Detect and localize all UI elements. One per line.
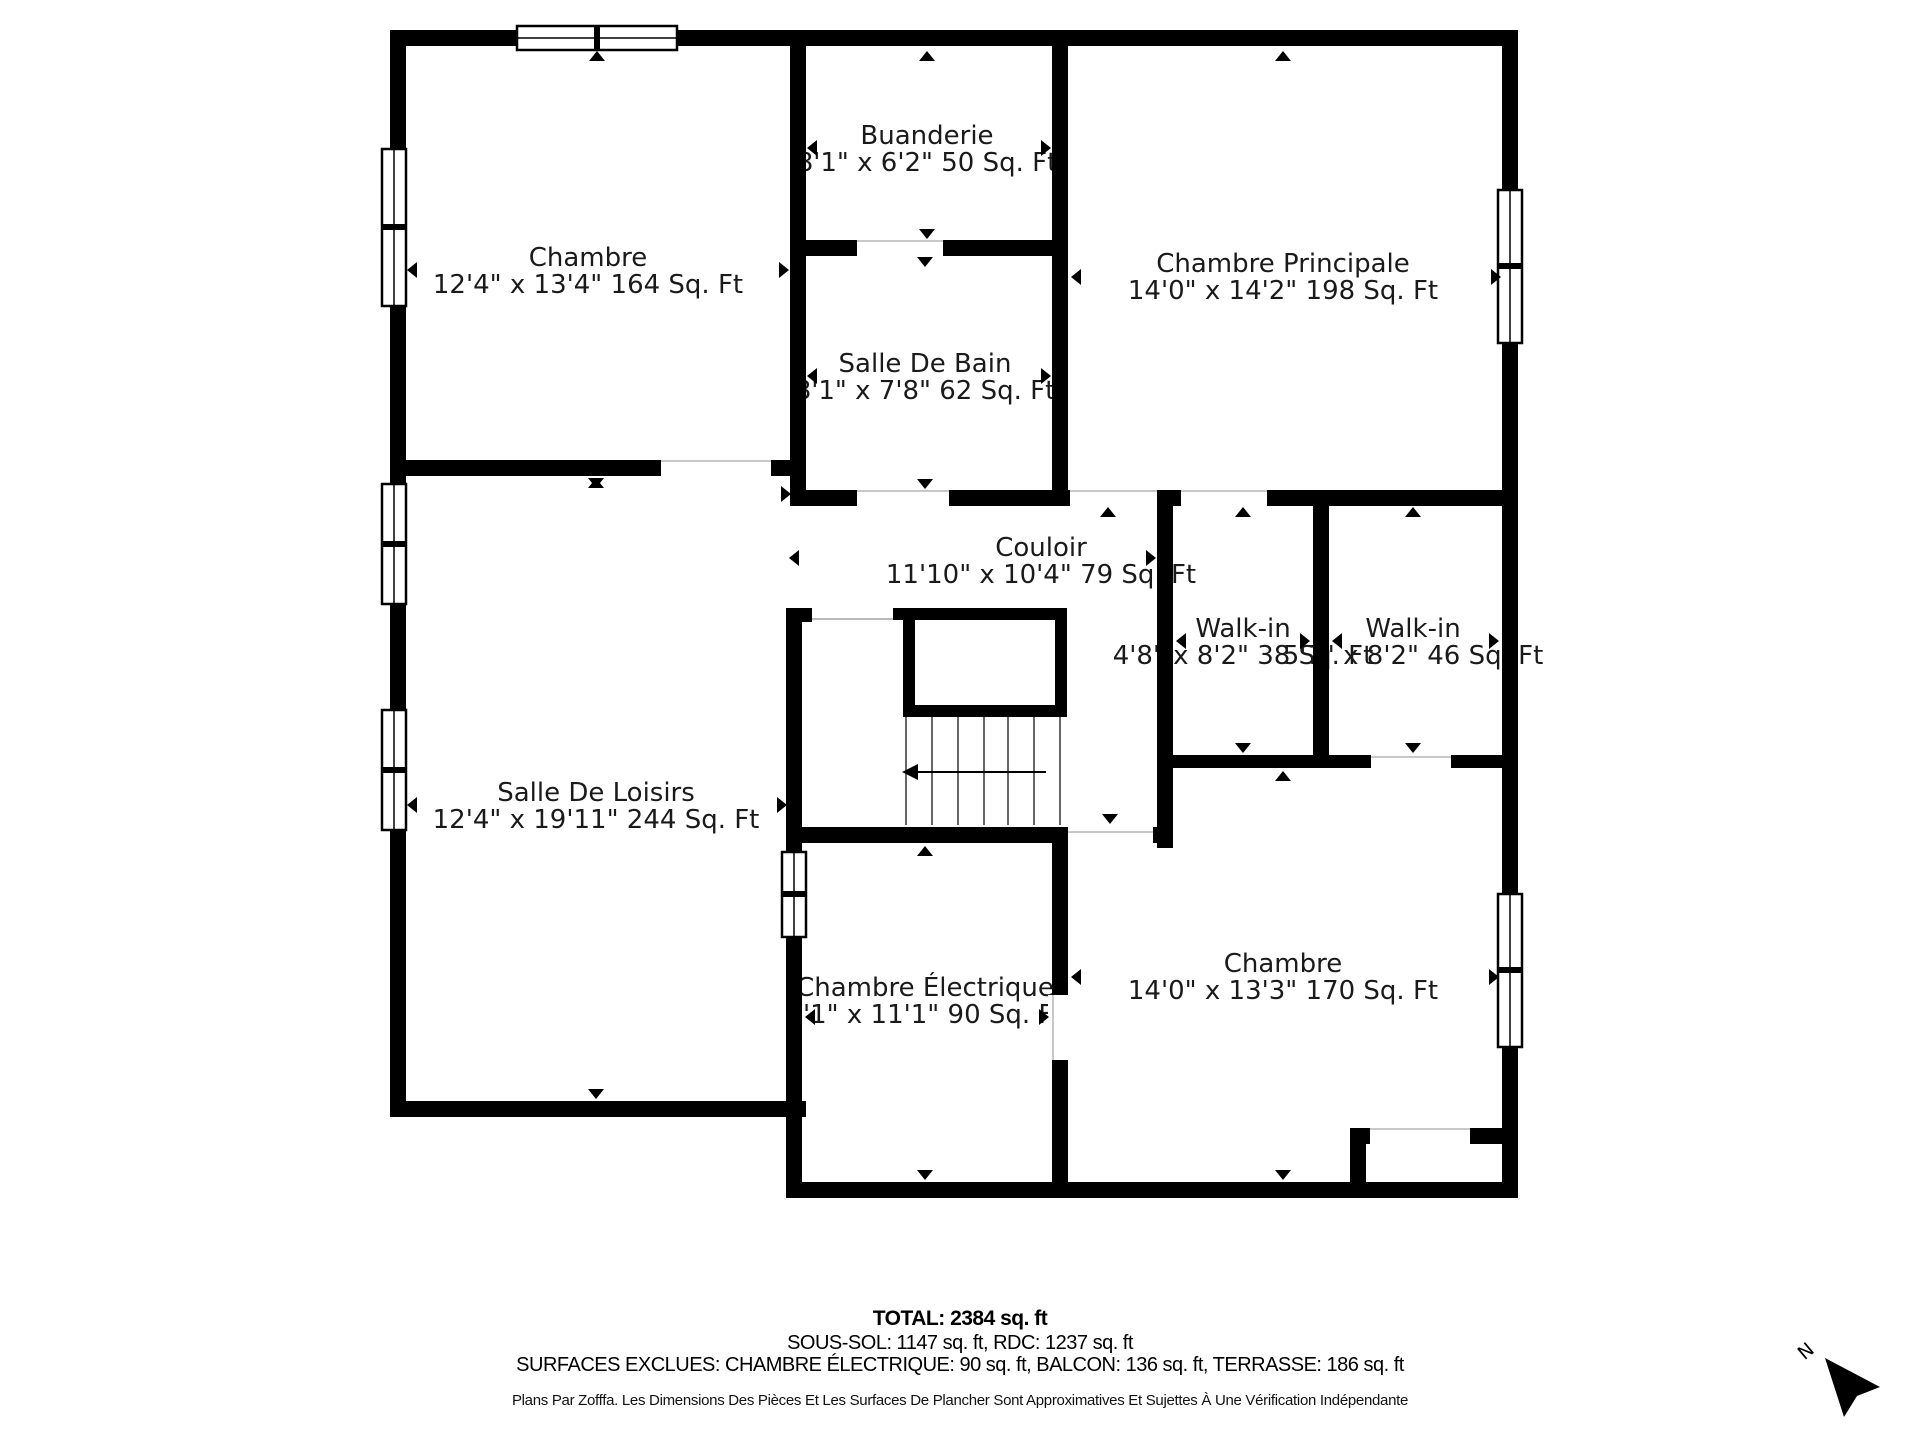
door-chambre-electrique xyxy=(1048,995,1072,1060)
room-dims: 12'4" x 13'4" 164 Sq. Ft xyxy=(433,270,743,300)
room-label-salle-de-bain: Salle De Bain 8'1" x 7'8" 62 Sq. Ft xyxy=(795,349,1056,406)
door-buanderie xyxy=(857,236,943,260)
window-chambre-electrique-left xyxy=(782,852,806,937)
room-dims: 8'1" x 6'2" 50 Sq. Ft xyxy=(797,148,1058,178)
north-arrow-icon xyxy=(1825,1358,1880,1417)
footer-exclusions: SURFACES EXCLUES: CHAMBRE ÉLECTRIQUE: 90… xyxy=(516,1353,1405,1376)
door-chambre-top-left xyxy=(661,456,771,480)
north-compass: N xyxy=(1794,1338,1880,1417)
door-couloir-to-chambre xyxy=(1068,823,1153,847)
room-label-salle-de-loisirs: Salle De Loisirs 12'4" x 19'11" 244 Sq. … xyxy=(433,778,760,835)
door-walk-in-1 xyxy=(1181,486,1267,510)
north-label: N xyxy=(1794,1338,1819,1364)
window-chambre-right xyxy=(1498,894,1522,1047)
window-loisirs-left-lower xyxy=(382,710,406,830)
room-dims: 12'4" x 19'11" 244 Sq. Ft xyxy=(433,805,760,835)
room-dims: 14'0" x 14'2" 198 Sq. Ft xyxy=(1128,276,1438,306)
room-name: Chambre xyxy=(1224,949,1343,979)
room-name: Salle De Bain xyxy=(839,349,1012,379)
room-labels: Chambre 12'4" x 13'4" 164 Sq. Ft Buander… xyxy=(433,121,1544,1030)
closet-opening xyxy=(1370,1124,1470,1148)
room-name: Couloir xyxy=(995,533,1087,563)
room-label-chambre-principale: Chambre Principale 14'0" x 14'2" 198 Sq.… xyxy=(1128,249,1438,306)
room-name: Chambre xyxy=(529,243,648,273)
room-name: Buanderie xyxy=(860,121,993,151)
room-dims: 11'10" x 10'4" 79 Sq. Ft xyxy=(886,560,1196,590)
room-name: Walk-in xyxy=(1365,614,1460,644)
room-name: Salle De Loisirs xyxy=(497,778,695,808)
window-principale-right xyxy=(1498,190,1522,343)
footer-levels: SOUS-SOL: 1147 sq. ft, RDC: 1237 sq. ft xyxy=(787,1332,1134,1354)
room-name: Chambre Électrique xyxy=(796,971,1054,1003)
door-walk-in-2 xyxy=(1371,751,1451,772)
room-label-chambre-top-left: Chambre 12'4" x 13'4" 164 Sq. Ft xyxy=(433,243,743,300)
staircase xyxy=(902,717,1060,825)
window-chambre-top xyxy=(517,26,677,50)
door-salle-de-bain xyxy=(857,486,949,510)
window-loisirs-left-upper xyxy=(382,484,406,604)
footer-total: TOTAL: 2384 sq. ft xyxy=(873,1307,1048,1330)
window-chambre-left xyxy=(382,149,406,306)
room-label-chambre-bottom-right: Chambre 14'0" x 13'3" 170 Sq. Ft xyxy=(1128,949,1438,1006)
floor-plan-page: Chambre 12'4" x 13'4" 164 Sq. Ft Buander… xyxy=(0,0,1920,1440)
room-dims: 14'0" x 13'3" 170 Sq. Ft xyxy=(1128,976,1438,1006)
footer: TOTAL: 2384 sq. ft SOUS-SOL: 1147 sq. ft… xyxy=(512,1307,1408,1409)
room-name: Walk-in xyxy=(1195,614,1290,644)
windows xyxy=(382,26,1522,1047)
room-label-buanderie: Buanderie 8'1" x 6'2" 50 Sq. Ft xyxy=(797,121,1058,178)
room-dims: 8'1" x 11'1" 90 Sq. Ft xyxy=(786,1000,1063,1030)
footer-disclaimer: Plans Par Zofffa. Les Dimensions Des Piè… xyxy=(512,1392,1408,1409)
stair-direction-arrow xyxy=(902,764,918,780)
room-label-chambre-electrique: Chambre Électrique 8'1" x 11'1" 90 Sq. F… xyxy=(786,971,1063,1030)
room-name: Chambre Principale xyxy=(1156,249,1410,279)
floor-plan-canvas: Chambre 12'4" x 13'4" 164 Sq. Ft Buander… xyxy=(0,0,1920,1440)
room-dims: 8'1" x 7'8" 62 Sq. Ft xyxy=(795,376,1056,406)
door-chambre-principale xyxy=(1070,486,1157,510)
